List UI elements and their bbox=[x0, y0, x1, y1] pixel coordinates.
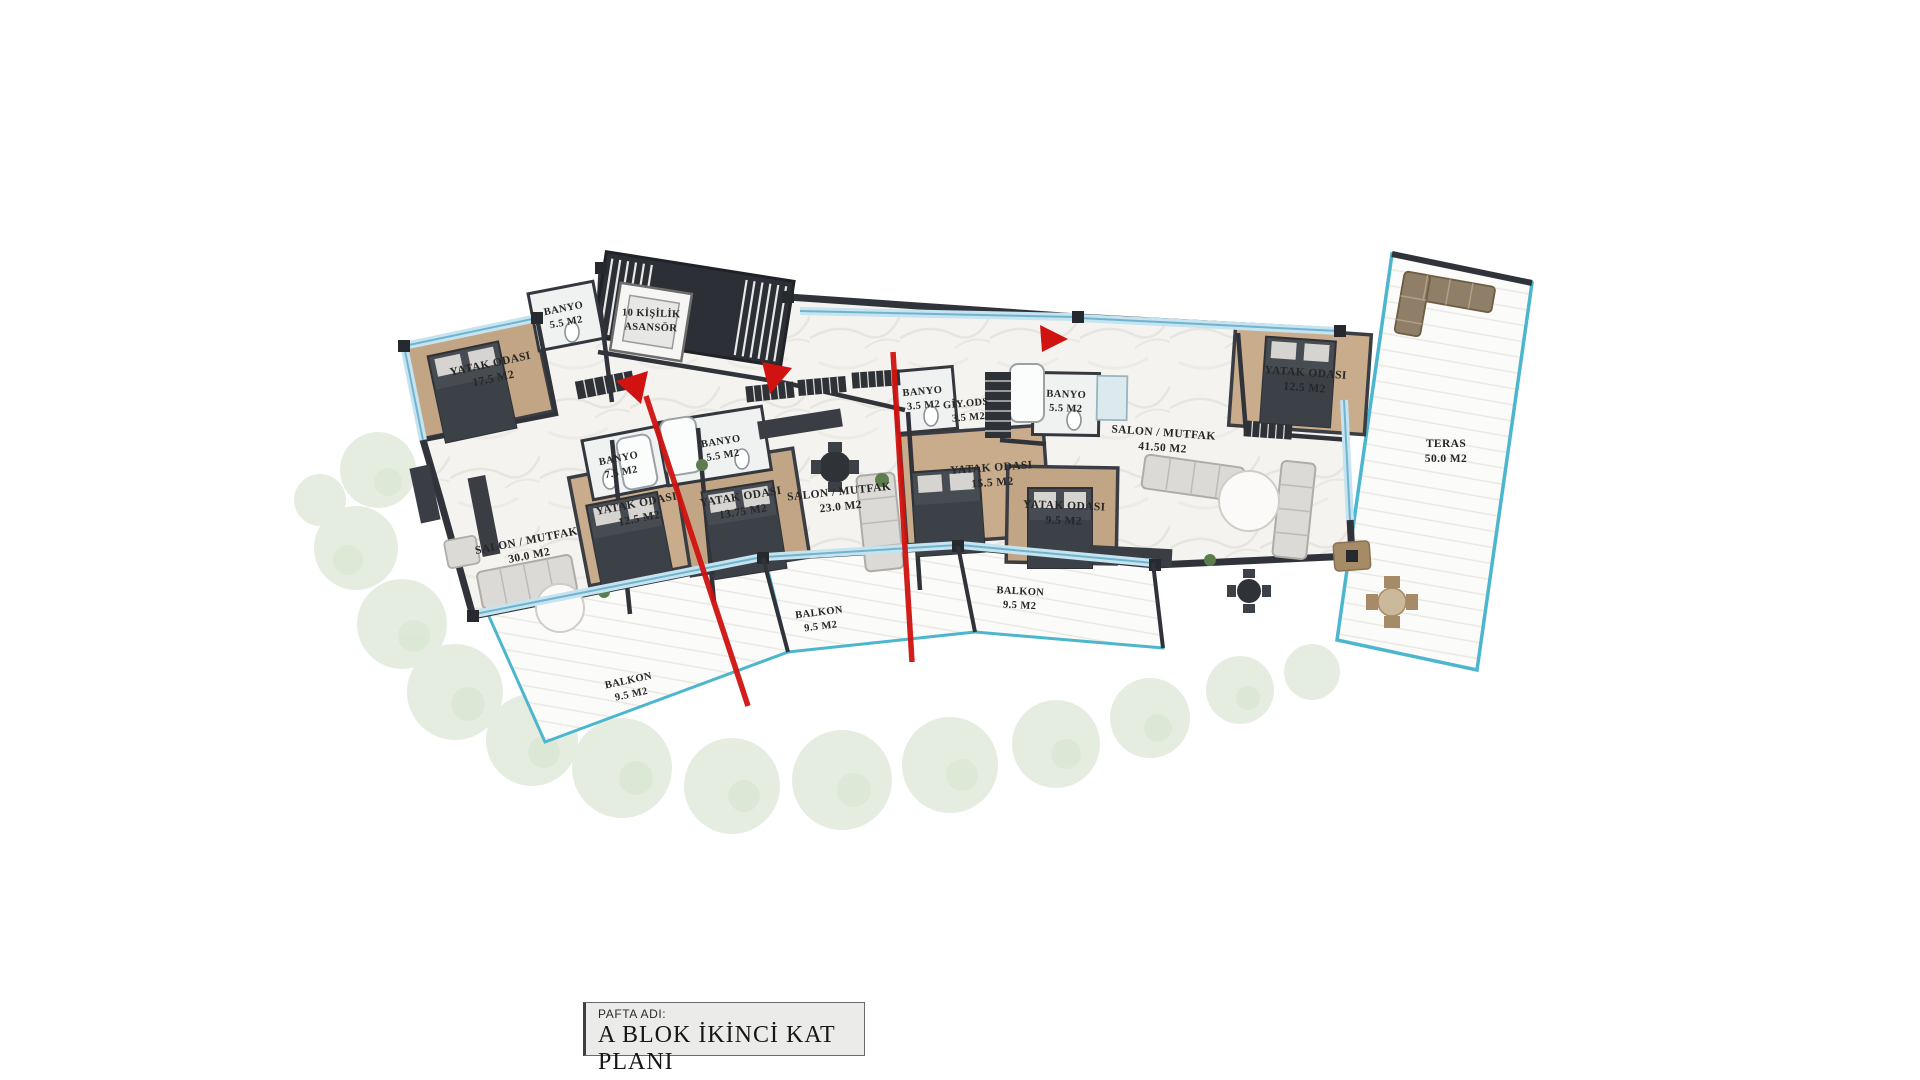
elevator bbox=[610, 283, 692, 361]
bed-yatak-right bbox=[1260, 337, 1336, 428]
balcony-dining bbox=[1227, 569, 1271, 613]
armchair-salon-left bbox=[444, 535, 481, 569]
stair-core bbox=[593, 252, 794, 367]
floor-plan-drawing bbox=[0, 0, 1920, 1080]
rug-salon-right bbox=[1219, 471, 1279, 531]
floor-plan-page: YATAK ODASI17.5 M2 BANYO5.5 M2 10 KİŞİLİ… bbox=[0, 0, 1920, 1080]
sheet-name-label: PAFTA ADI: bbox=[598, 1007, 854, 1021]
title-block: PAFTA ADI: A BLOK İKİNCİ KAT PLANI bbox=[583, 1002, 865, 1056]
plan-title: A BLOK İKİNCİ KAT PLANI bbox=[598, 1022, 854, 1076]
